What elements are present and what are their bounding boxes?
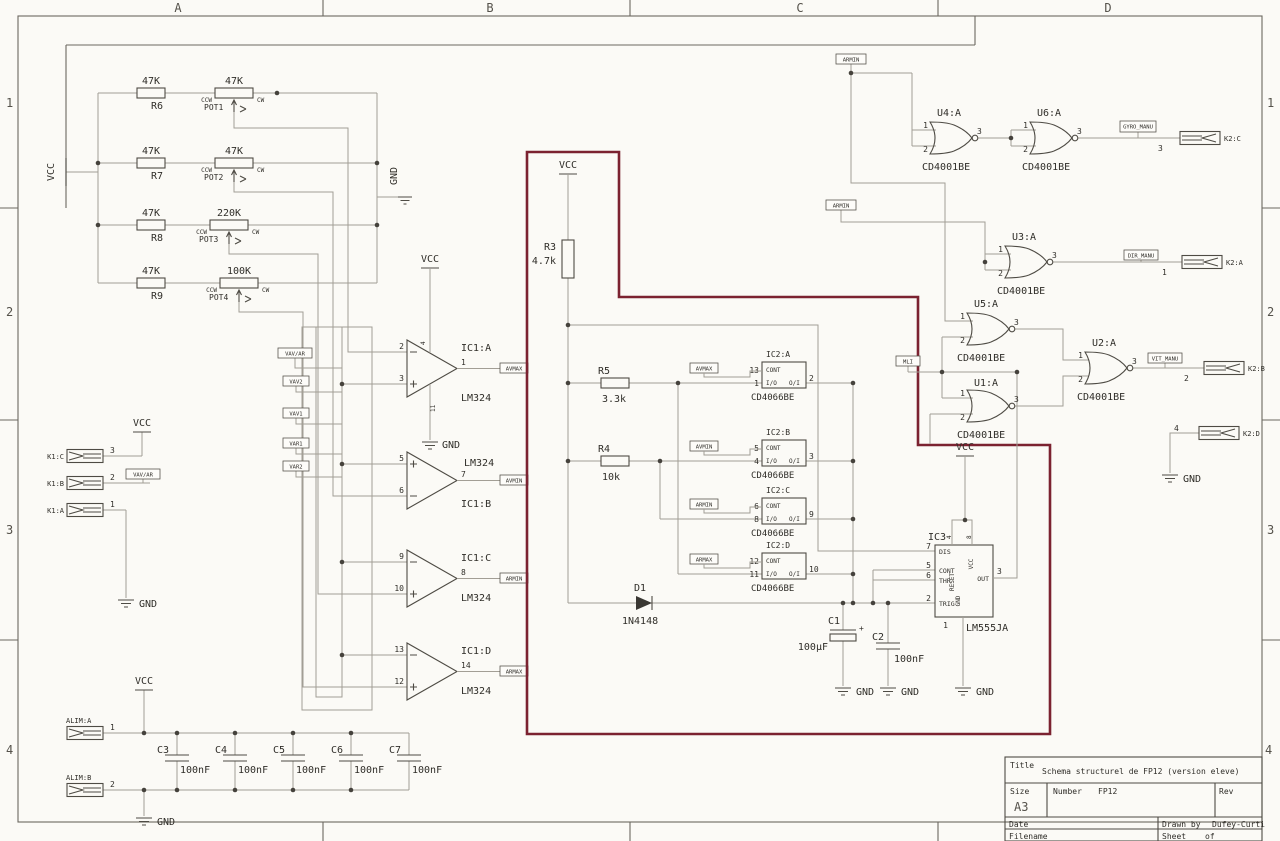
gate-pin1: 1 [998, 245, 1003, 254]
pin-ni: 5 [399, 454, 404, 463]
opamp-signs [410, 562, 417, 598]
cap-c4: C4 100nF [215, 745, 268, 776]
resistor-r6: 47K R6 [137, 76, 165, 112]
connector-k1c [67, 450, 103, 463]
switch-ic2a: IC2:A CONT I/O O/I 13 1 2 CD4066BE AVMAX [690, 350, 814, 403]
nor-gate-icon [1085, 352, 1127, 384]
ctrl-label: ARMIN [696, 503, 713, 509]
connector-name: K2:B [1248, 365, 1265, 373]
net-label-var2: VAR2 [289, 465, 302, 471]
connector-chevron-icon [69, 479, 101, 487]
opamp-signs [410, 352, 417, 388]
gnd-glyph [118, 600, 134, 607]
connector-chevron-icon [1206, 364, 1240, 372]
zone-letter-b: B [486, 1, 493, 15]
resistor-r7: 47K R7 [137, 146, 165, 182]
connector-k1b [67, 477, 103, 490]
net-label-vav1: VAV1 [289, 412, 302, 418]
row-number-3-left: 3 [6, 523, 13, 537]
pot4: 100K CCW CW POT4 [206, 266, 269, 302]
connector-k2d [1199, 427, 1239, 440]
cap-ref: C3 [157, 745, 169, 756]
gnd-symbol: GND [389, 167, 412, 204]
gate-part: CD4001BE [997, 286, 1045, 297]
row-number-1-right: 1 [1267, 96, 1274, 110]
connector-name: K2:A [1226, 259, 1244, 267]
gnd-label: GND [139, 599, 157, 610]
pin-ni: 3 [399, 374, 404, 383]
connector-chevron-icon [69, 506, 101, 514]
cap-ref: C6 [331, 745, 343, 756]
resistor-r9: 47K R9 [137, 266, 165, 302]
vcc-symbol: VCC [135, 676, 153, 690]
nor-gate-icon [967, 313, 1009, 345]
gnd-symbol: GND [118, 599, 157, 610]
pin-in: 4 [754, 457, 759, 466]
title-label: Title [1010, 761, 1034, 770]
of-label: of [1205, 832, 1215, 841]
wiper-arrow-icon [232, 170, 247, 182]
port-vcc: VCC [968, 558, 975, 569]
gnd-label: GND [856, 687, 874, 698]
vcc-label: VCC [956, 442, 974, 453]
pin-vcc: 4 [420, 341, 427, 345]
row-number-4-right: 4 [1265, 743, 1272, 757]
switch-ic2c: IC2:C CONT I/O O/I 6 8 9 CD4066BE ARMIN [690, 486, 814, 539]
switch-name: IC2:B [766, 428, 790, 437]
connector-alim-b [67, 784, 103, 797]
switch-name: IC2:D [766, 541, 790, 550]
pin-cont: 5 [926, 561, 931, 570]
opamp-name: IC1:C [461, 553, 491, 564]
opamp-signs [410, 461, 417, 497]
diode-ref: D1 [634, 583, 646, 594]
port-gnd: GND [955, 595, 962, 606]
pin-out: 8 [461, 568, 466, 577]
zone-letter-c: C [796, 1, 803, 15]
cw-label: CW [257, 167, 265, 174]
net-label-dir-manu: DIR_MANU [1128, 254, 1155, 260]
port-cont: CONT [766, 503, 781, 510]
resistor-ref: R9 [151, 291, 163, 302]
pot-body [210, 220, 248, 230]
row-number-2-left: 2 [6, 305, 13, 319]
gate-name: U1:A [974, 378, 998, 389]
gate-pin2: 2 [960, 336, 965, 345]
net-label-avmin: AVMIN [506, 479, 523, 485]
port-io: I/O [766, 571, 777, 578]
gate-pin2: 2 [923, 145, 928, 154]
gate-u3 [1005, 246, 1053, 278]
resistor-value: 47K [142, 208, 160, 219]
net-label-armax: ARMAX [506, 670, 523, 676]
connector-chevron-icon [1201, 429, 1235, 437]
pot-name: POT4 [209, 293, 228, 302]
port-dis: DIS [939, 548, 951, 556]
schematic-sheet: A B C D 1 2 3 4 1 2 3 4 VCC GND 47K R6 4… [0, 0, 1280, 841]
cap-body [830, 634, 856, 641]
pin-ni: 12 [394, 677, 404, 686]
resistor-r4: R4 10k [598, 444, 629, 483]
gnd-glyph [422, 442, 438, 449]
opamp-ic1d: 13 12 14 ARMAX IC1:D LM324 [394, 643, 528, 700]
resistor-r5: R5 3.3k [598, 366, 629, 405]
cap-c1: + C1 100µF GND [798, 603, 874, 698]
connector-chevron-icon [1184, 258, 1218, 266]
schematic-canvas: A B C D 1 2 3 4 1 2 3 4 VCC GND 47K R6 4… [0, 0, 1280, 841]
cap-ref: C2 [872, 632, 884, 643]
cap-c3: C3 100nF [157, 745, 210, 776]
resistor-body [137, 220, 165, 230]
port-cont: CONT [766, 558, 781, 565]
vcc-symbol: VCC [133, 418, 151, 432]
bus-stub-wires [342, 384, 407, 655]
power-entry: VCC ALIM:A 1 ALIM:B 2 C3 100nF C4 100nF … [66, 676, 442, 828]
pin-thr: 6 [926, 571, 931, 580]
switch-name: IC2:C [766, 486, 790, 495]
connector-name: K2:C [1224, 135, 1241, 143]
pot-value: 220K [217, 208, 241, 219]
cap-c5: C5 100nF [273, 745, 326, 776]
gnd-label: GND [157, 817, 175, 828]
gate-pin2: 2 [1023, 145, 1028, 154]
opamp-ic1a: 2 3 1 AVMAX IC1:A LM324 VCC 4 11 GND [399, 254, 528, 451]
gnd-label: GND [976, 687, 994, 698]
pot3: 220K CCW CW POT3 [196, 208, 259, 244]
cap-value: 100nF [180, 765, 210, 776]
opamp-part: LM324 [461, 686, 491, 697]
resistor-ref: R8 [151, 233, 163, 244]
vcc-label: VCC [559, 160, 577, 171]
gate-pin1: 1 [960, 312, 965, 321]
wiper-arrow-icon [232, 100, 247, 112]
pin-inv: 13 [394, 645, 404, 654]
connector-name: ALIM:B [66, 774, 91, 782]
pin-out: 2 [809, 374, 814, 383]
switch-part: CD4066BE [751, 471, 794, 481]
drawn-by-value: Dufey-Curti [1212, 820, 1265, 829]
k1-connectors: VCC K1:C 3 K1:B 2 VAV/AR K1:A 1 GND [47, 418, 160, 610]
resistor-ref: R4 [598, 444, 610, 455]
pin-out: 9 [809, 510, 814, 519]
port-cont: CONT [766, 367, 781, 374]
pin-ni: 10 [394, 584, 404, 593]
connector-name: K2:D [1243, 430, 1260, 438]
resistor-ref: R5 [598, 366, 610, 377]
gnd-label: GND [442, 440, 460, 451]
rev-label: Rev [1219, 787, 1234, 796]
gnd-label: GND [389, 167, 400, 185]
connector-pin: 1 [110, 723, 115, 732]
row-number-3-right: 3 [1267, 523, 1274, 537]
bus-loop-inner [316, 327, 342, 697]
diode-value: 1N4148 [622, 616, 658, 627]
gate-pin1: 1 [1023, 121, 1028, 130]
resistor-value: 10k [602, 472, 620, 483]
resistor-r3: R3 4.7k [532, 240, 574, 278]
opamp-triangle [407, 340, 457, 397]
net-label-gyro-manu: GYRO_MANU [1123, 125, 1153, 131]
analog-block: VCC R3 4.7k R5 3.3k R4 10k D1 1N4148 IC2… [532, 160, 1017, 698]
vcc-label: VCC [46, 163, 57, 181]
port-trig: TRIG [939, 600, 955, 608]
gnd-symbol: 11 GND [422, 384, 460, 451]
gnd-label: GND [1183, 474, 1201, 485]
invert-bubble [1072, 135, 1078, 141]
resistor-value: 47K [142, 76, 160, 87]
pin-out: 7 [461, 470, 466, 479]
switch-part: CD4066BE [751, 584, 794, 594]
connector-name: K1:A [47, 507, 65, 515]
net-label-vav2: VAV2 [289, 380, 302, 386]
pot-value: 47K [225, 76, 243, 87]
resistor-body [137, 278, 165, 288]
gate-pin3: 3 [1052, 251, 1057, 260]
pin-out: 14 [461, 661, 471, 670]
resistor-body [137, 158, 165, 168]
cw-label: CW [257, 97, 265, 104]
gate-pin2: 2 [960, 413, 965, 422]
drawn-by-label: Drawn by [1162, 820, 1201, 829]
ctrl-label: AVMAX [696, 367, 713, 373]
gate-pin1: 1 [923, 121, 928, 130]
sheet-label: Sheet [1162, 832, 1186, 841]
date-label: Date [1009, 820, 1028, 829]
resistor-body [562, 240, 574, 278]
resistor-r8: 47K R8 [137, 208, 165, 244]
row-number-2-right: 2 [1267, 305, 1274, 319]
invert-bubble [1009, 326, 1015, 332]
switch-ic2d: IC2:D CONT I/O O/I 12 11 10 CD4066BE ARM… [690, 541, 819, 594]
gate-u5 [967, 313, 1015, 345]
border-rect [18, 16, 1262, 822]
gate-pin3: 3 [1077, 127, 1082, 136]
gate-u1 [967, 390, 1015, 422]
pin-gnd: 11 [430, 404, 437, 412]
switch-part: CD4066BE [751, 393, 794, 403]
connector-pin: 3 [110, 446, 115, 455]
cap-c7: C7 100nF [389, 745, 442, 776]
pin-inv: 6 [399, 486, 404, 495]
bus-wiring: VAV/AR VAV2 VAV1 VAR1 VAR2 [229, 112, 407, 710]
vcc-symbol: VCC 4 [420, 254, 439, 353]
port-oi: O/I [789, 571, 800, 578]
pin-dis: 7 [926, 542, 931, 551]
opamp-name: IC1:A [461, 343, 491, 354]
invert-bubble [1127, 365, 1133, 371]
pin-in: 8 [754, 515, 759, 524]
switch-name: IC2:A [766, 350, 790, 359]
pot-body [215, 88, 253, 98]
resistor-ref: R6 [151, 101, 163, 112]
pin-out: 3 [809, 452, 814, 461]
resistor-network: VCC GND 47K R6 47K R7 47K R8 47K R9 [46, 76, 412, 302]
cap-value: 100nF [894, 654, 924, 665]
gate-part: CD4001BE [957, 430, 1005, 441]
connector-k1a [67, 504, 103, 517]
zone-letter-d: D [1104, 1, 1111, 15]
opamp-part: LM324 [461, 593, 491, 604]
gate-pin3: 3 [1014, 395, 1019, 404]
connector-name: K1:B [47, 480, 64, 488]
cap-c2: C2 100nF GND [872, 603, 924, 698]
vcc-label: VCC [135, 676, 153, 687]
gate-pin3: 3 [977, 127, 982, 136]
port-out: OUT [977, 575, 989, 583]
gate-u2 [1085, 352, 1133, 384]
filename-label: Filename [1009, 832, 1048, 841]
net-label-mli: MLI [903, 360, 913, 366]
pot1: 47K CCW CW POT1 [201, 76, 264, 112]
switch-ic2b: IC2:B CONT I/O O/I 5 4 3 CD4066BE AVMIN [690, 428, 814, 481]
pot-name: POT1 [204, 103, 223, 112]
connector-k2b [1204, 362, 1244, 375]
net-label-armin: ARMIN [506, 577, 523, 583]
gate-pin3: 3 [1014, 318, 1019, 327]
opamp-part: LM324 [461, 393, 491, 404]
connector-pin: 4 [1174, 424, 1179, 433]
wiper-arrow-icon [237, 290, 252, 302]
nor-gate-icon [1030, 122, 1072, 154]
net-label-armin-mid: ARMIN [833, 204, 850, 210]
port-io: I/O [766, 516, 777, 523]
resistor-value: 3.3k [602, 394, 626, 405]
connector-chevron-icon [69, 786, 101, 794]
vcc-symbol: VCC [559, 160, 577, 174]
gate-pin1: 1 [1078, 351, 1083, 360]
port-reset: RESET [949, 573, 956, 591]
connector-pin: 2 [110, 473, 115, 482]
zone-ticks [0, 0, 1280, 841]
cap-value: 100nF [354, 765, 384, 776]
connector-pin: 2 [110, 780, 115, 789]
resistor-body [601, 378, 629, 388]
opamp-triangle [407, 643, 457, 700]
vcc-symbol: VCC [956, 442, 974, 456]
pin-trig: 2 [926, 594, 931, 603]
pot-name: POT2 [204, 173, 223, 182]
pot-name: POT3 [199, 235, 218, 244]
gate-pin1: 1 [960, 389, 965, 398]
opamp-signs [410, 655, 417, 691]
cap-polarity: + [859, 624, 864, 633]
net-label-vit-manu: VIT_MANU [1152, 357, 1179, 363]
connector-alim-a [67, 727, 103, 740]
resistor-value: 4.7k [532, 256, 556, 267]
pin-in: 11 [749, 570, 759, 579]
gnd-glyph [1162, 475, 1178, 482]
gate-name: U4:A [937, 108, 961, 119]
resistor-value: 47K [142, 146, 160, 157]
port-oi: O/I [789, 516, 800, 523]
gnd-glyph [835, 688, 851, 695]
diode-triangle [636, 596, 652, 610]
size-value: A3 [1014, 800, 1028, 814]
cap-ref: C7 [389, 745, 401, 756]
gate-pin2: 2 [998, 269, 1003, 278]
gate-part: CD4001BE [1022, 162, 1070, 173]
switch-part: CD4066BE [751, 529, 794, 539]
zone-letter-a: A [174, 1, 182, 15]
connector-pin: 1 [1162, 268, 1167, 277]
pot-value: 100K [227, 266, 251, 277]
opamp-name: IC1:D [461, 646, 491, 657]
gate-pin3: 3 [1132, 357, 1137, 366]
opamp-ic1b: 5 6 7 AVMIN LM324 IC1:B [399, 452, 528, 510]
connector-chevron-icon [1182, 134, 1216, 142]
pin-out: 10 [809, 565, 819, 574]
k1-wires [103, 432, 150, 598]
cap-ref: C4 [215, 745, 227, 756]
port-oi: O/I [789, 380, 800, 387]
cap-value: 100nF [296, 765, 326, 776]
vcc-label: VCC [421, 254, 439, 265]
resistor-body [601, 456, 629, 466]
opamp-part: LM324 [464, 458, 494, 469]
size-label: Size [1010, 787, 1029, 796]
gnd-symbol: GND [1162, 474, 1201, 485]
opamp-ic1c: 9 10 8 ARMIN IC1:C LM324 [394, 550, 528, 607]
title-block: Title Schema structurel de FP12 (version… [1005, 757, 1265, 841]
nor-gate-icon [930, 122, 972, 154]
gnd-glyph [398, 197, 412, 204]
cap-value: 100µF [798, 642, 828, 653]
gate-logic: U4:A CD4001BE 1 2 3 U6:A CD4001BE 1 2 3 … [826, 54, 1265, 485]
nor-gate-icon [967, 390, 1009, 422]
cap-value: 100nF [238, 765, 268, 776]
gate-name: U2:A [1092, 338, 1116, 349]
pot2: 47K CCW CW POT2 [201, 146, 264, 182]
invert-bubble [1047, 259, 1053, 265]
resistor-ref: R7 [151, 171, 163, 182]
net-label-vav-ar: VAV/AR [285, 352, 306, 358]
cap-plates [876, 643, 900, 649]
net-label-armin-top: ARMIN [843, 58, 860, 64]
connector-chevron-icon [69, 729, 101, 737]
port-cont: CONT [766, 445, 781, 452]
connector-chevron-icon [69, 452, 101, 460]
connector-pin: 2 [1184, 374, 1189, 383]
ctrl-label: AVMIN [696, 445, 713, 451]
pin-gnd: 1 [943, 621, 948, 630]
gate-u4 [930, 122, 978, 154]
title-value: Schema structurel de FP12 (version eleve… [1042, 767, 1239, 776]
invert-bubble [972, 135, 978, 141]
port-oi: O/I [789, 458, 800, 465]
opamp-triangle [407, 452, 457, 509]
row-number-4-left: 4 [6, 743, 13, 757]
net-label-vav-ar: VAV/AR [133, 473, 154, 479]
resistor-value: 47K [142, 266, 160, 277]
cap-ref: C1 [828, 616, 840, 627]
timer-part: LM555JA [966, 623, 1008, 634]
gate-part: CD4001BE [957, 353, 1005, 364]
opamp-name: IC1:B [461, 499, 491, 510]
timer-ic3: IC3 DIS CONT THR TRIG RESET VCC GND OUT … [926, 372, 1017, 698]
gate-part: CD4001BE [1077, 392, 1125, 403]
resistor-body [137, 88, 165, 98]
net-label-var1: VAR1 [289, 442, 302, 448]
net-label-avmax: AVMAX [506, 367, 523, 373]
row-number-1-left: 1 [6, 96, 13, 110]
resistor-ref: R3 [544, 242, 556, 253]
power-wires [103, 690, 409, 816]
connector-pin: 3 [1158, 144, 1163, 153]
vcc-label: VCC [133, 418, 151, 429]
gate-name: U6:A [1037, 108, 1061, 119]
cw-label: CW [262, 287, 270, 294]
pot-wiper-wires [229, 112, 407, 687]
